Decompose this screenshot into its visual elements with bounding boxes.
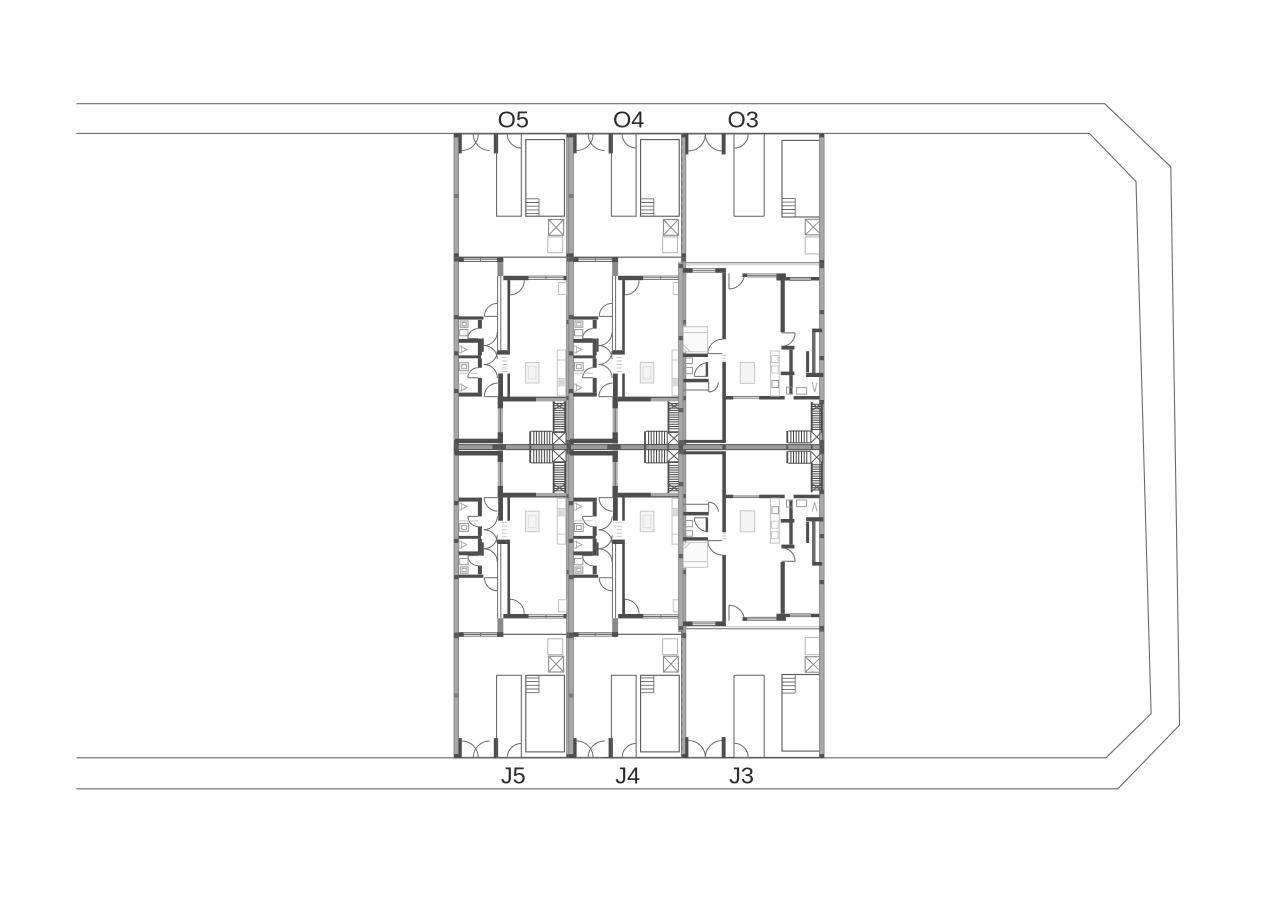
svg-text:O5: O5 <box>498 107 529 133</box>
svg-text:J4: J4 <box>615 762 640 788</box>
svg-text:O4: O4 <box>613 107 644 133</box>
svg-text:J3: J3 <box>729 762 754 788</box>
svg-text:O3: O3 <box>728 107 759 133</box>
svg-text:J5: J5 <box>501 762 526 788</box>
